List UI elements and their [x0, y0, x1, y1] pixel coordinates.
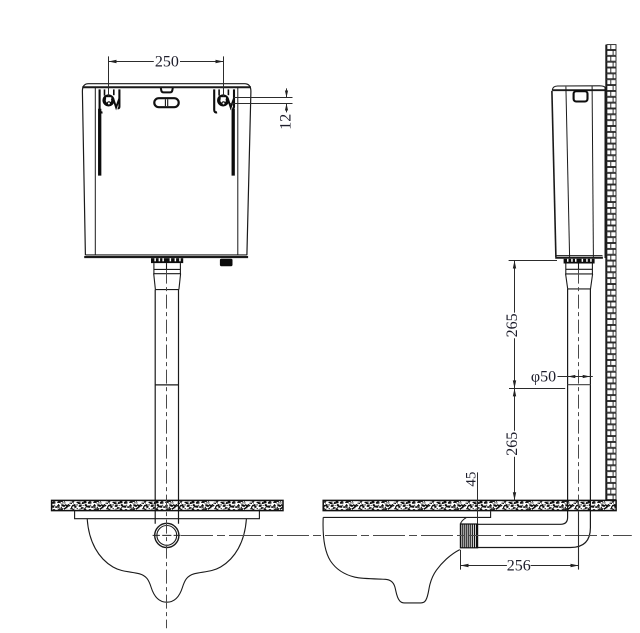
svg-text:45: 45: [463, 472, 479, 487]
svg-text:φ50: φ50: [531, 369, 556, 386]
svg-text:265: 265: [504, 432, 521, 456]
svg-text:256: 256: [507, 558, 531, 575]
svg-text:250: 250: [155, 54, 179, 71]
svg-text:12: 12: [278, 114, 295, 130]
svg-text:265: 265: [504, 313, 521, 337]
